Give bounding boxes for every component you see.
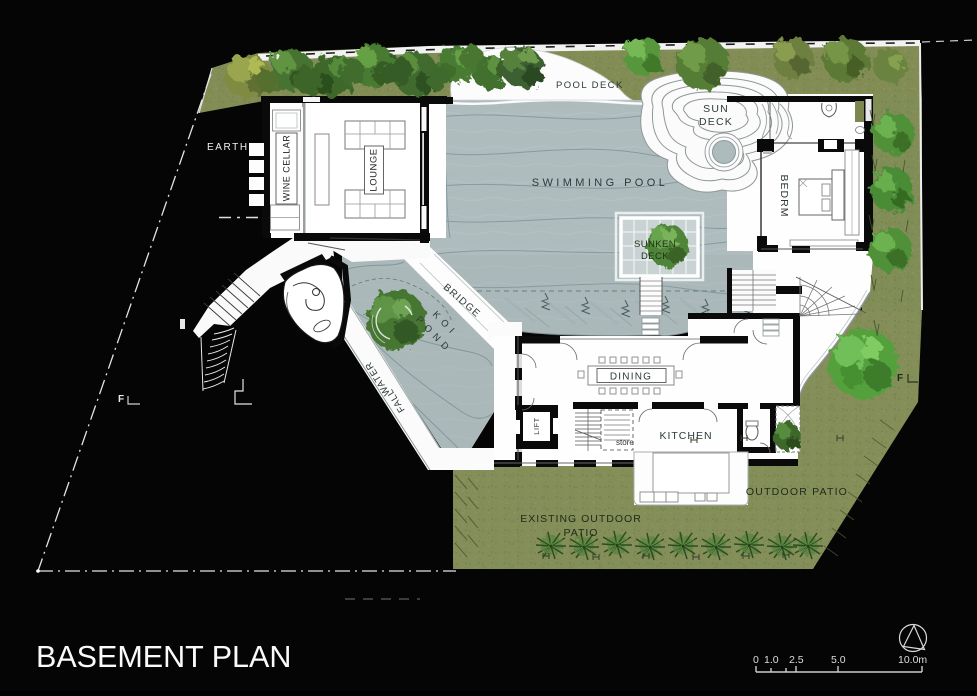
svg-text:F: F <box>897 373 903 384</box>
svg-text:0: 0 <box>753 654 759 666</box>
svg-text:DECK: DECK <box>641 251 669 262</box>
svg-text:SWIMMING POOL: SWIMMING POOL <box>532 177 668 189</box>
svg-text:F: F <box>118 394 124 405</box>
svg-text:EXISTING OUTDOOR: EXISTING OUTDOOR <box>520 513 642 525</box>
svg-text:SUN: SUN <box>703 103 729 115</box>
svg-text:SUNKEN: SUNKEN <box>634 239 676 250</box>
svg-text:DINING: DINING <box>610 372 652 383</box>
svg-text:BEDRM: BEDRM <box>778 175 790 218</box>
svg-text:LOUNGE: LOUNGE <box>369 148 380 191</box>
svg-text:DECK: DECK <box>699 116 733 128</box>
svg-text:POOL DECK: POOL DECK <box>556 80 624 91</box>
svg-text:1.0: 1.0 <box>764 654 779 666</box>
svg-text:2.5: 2.5 <box>789 654 804 666</box>
svg-text:LIFT: LIFT <box>532 417 541 434</box>
svg-text:10.0m: 10.0m <box>898 654 927 666</box>
svg-text:PATIO: PATIO <box>564 527 599 539</box>
svg-text:EARTH: EARTH <box>207 142 249 153</box>
svg-text:5.0: 5.0 <box>831 654 846 666</box>
svg-text:store: store <box>616 438 634 447</box>
svg-text:OUTDOOR PATIO: OUTDOOR PATIO <box>746 486 848 498</box>
svg-text:KITCHEN: KITCHEN <box>659 430 712 442</box>
svg-text:BASEMENT PLAN: BASEMENT PLAN <box>36 640 291 674</box>
svg-text:WINE CELLAR: WINE CELLAR <box>282 135 292 202</box>
